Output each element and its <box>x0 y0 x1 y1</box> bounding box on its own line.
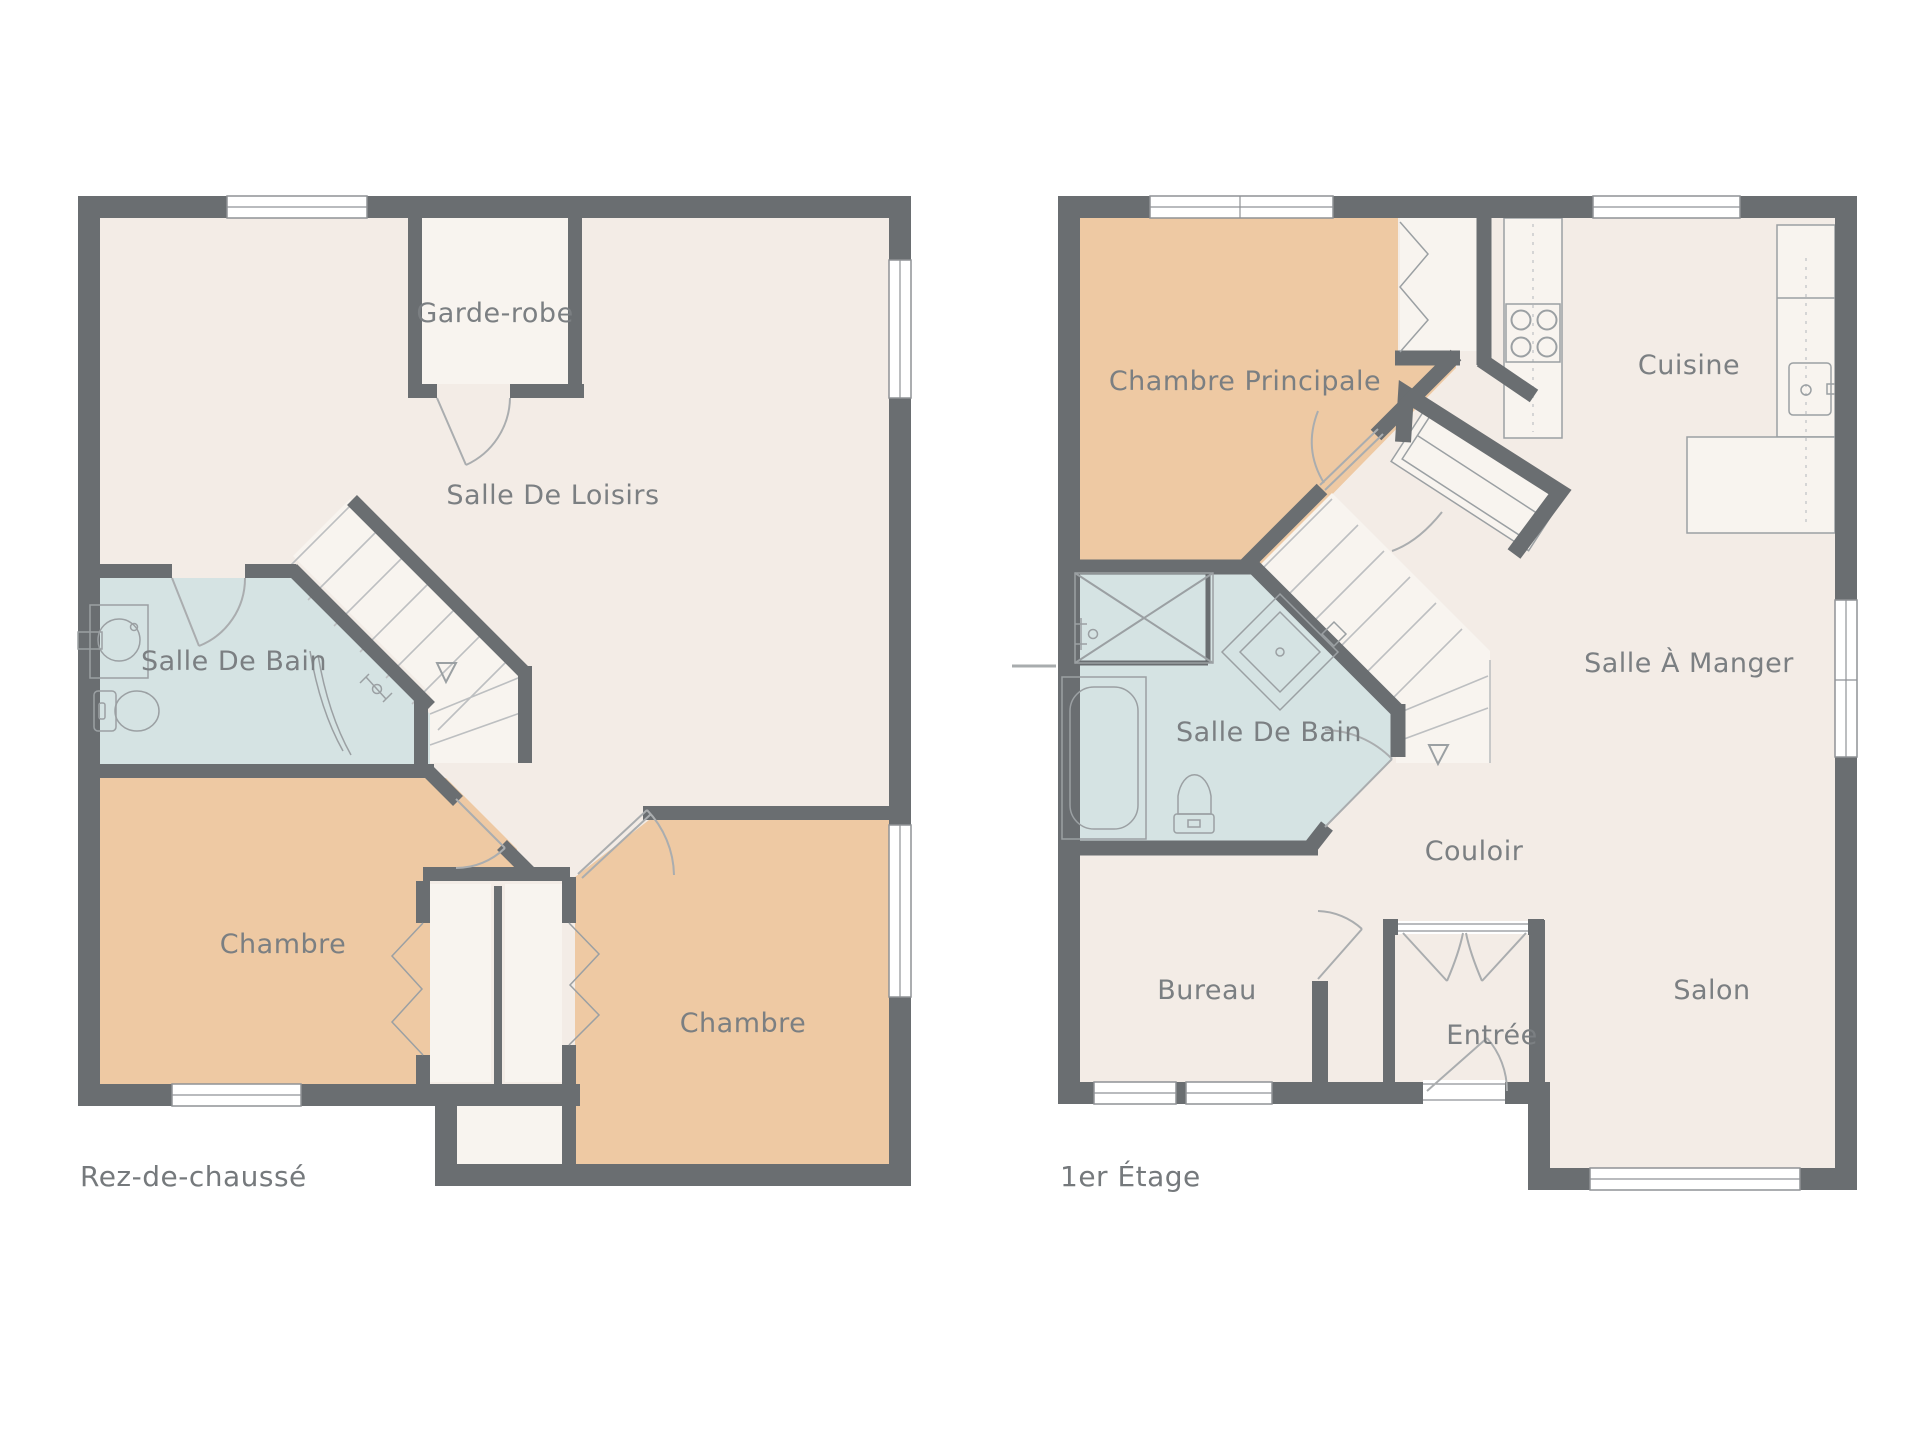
room-label-salon: Salon <box>1673 975 1750 1006</box>
ground-closet-left-area <box>430 884 491 1082</box>
floor-plans-drawing: Garde-robe Salle De Loisirs Salle De Bai… <box>0 0 1920 1440</box>
master-closet-area <box>1400 218 1477 351</box>
window <box>1186 1082 1272 1104</box>
ground-closet-right-area <box>505 884 562 1082</box>
room-label-salle-de-bain-etage: Salle De Bain <box>1176 717 1362 748</box>
room-label-couloir: Couloir <box>1425 836 1524 867</box>
window <box>1150 196 1333 218</box>
room-label-salle-de-loisirs: Salle De Loisirs <box>446 480 659 511</box>
upper-floor-plan: Chambre Principale Cuisine Salle À Mange… <box>1012 196 1857 1193</box>
window <box>1835 600 1857 757</box>
room-label-cuisine: Cuisine <box>1638 350 1740 381</box>
room-label-entree: Entrée <box>1446 1020 1538 1051</box>
room-label-bureau: Bureau <box>1157 975 1256 1006</box>
ground-storage-cell-area <box>457 1106 562 1164</box>
window <box>1593 196 1740 218</box>
floor-title-upper: 1er Étage <box>1060 1159 1201 1193</box>
window <box>889 260 911 398</box>
ground-floor-plan: Garde-robe Salle De Loisirs Salle De Bai… <box>78 196 911 1193</box>
room-label-chambre-principale: Chambre Principale <box>1109 366 1381 397</box>
french-door-opening <box>1398 921 1528 934</box>
room-label-chambre-left: Chambre <box>220 929 347 960</box>
window <box>1094 1082 1176 1104</box>
room-label-garde-robe: Garde-robe <box>416 298 573 329</box>
window <box>227 196 367 218</box>
room-label-salle-de-bain-rdc: Salle De Bain <box>141 646 327 677</box>
floor-plan-page: Garde-robe Salle De Loisirs Salle De Bai… <box>0 0 1920 1440</box>
window <box>1590 1168 1800 1190</box>
room-label-salle-a-manger: Salle À Manger <box>1584 647 1794 679</box>
window <box>172 1084 301 1106</box>
ground-bedroom-right-area <box>575 820 889 1164</box>
floor-title-ground: Rez-de-chaussé <box>80 1160 307 1193</box>
room-label-chambre-right: Chambre <box>680 1008 807 1039</box>
window <box>889 825 911 997</box>
